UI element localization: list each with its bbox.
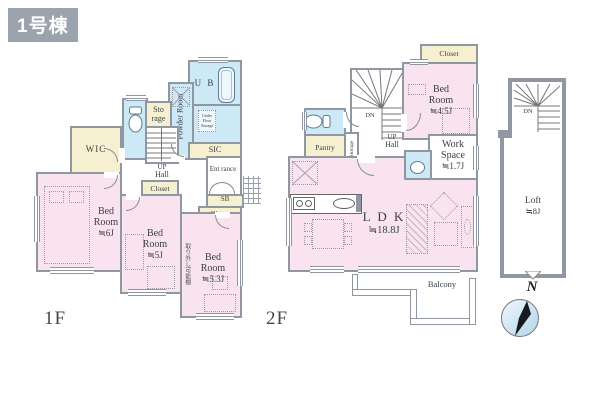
- window-marker: [286, 198, 292, 246]
- bedroom-53j-label: Bed Room ≒5.3J: [193, 252, 233, 284]
- room-toilet-2f: [304, 108, 346, 136]
- desk-icon-53j: [204, 294, 236, 312]
- under-floor-storage-box: Under Floor Storage: [198, 110, 216, 132]
- window-marker: [34, 196, 40, 242]
- building-title: 1号棟: [8, 8, 78, 42]
- bed-icon-6j: [44, 186, 90, 264]
- entrance-label: Ent rance: [208, 166, 238, 174]
- window-marker: [198, 57, 228, 63]
- chair-icon: [304, 223, 312, 232]
- under-floor-storage-label: Under Floor Storage: [199, 113, 215, 129]
- bathtub-inner: [221, 70, 232, 100]
- window-marker: [410, 59, 428, 65]
- floor-label-2f: 2F: [266, 308, 288, 330]
- window-marker: [126, 95, 146, 101]
- toilet-icon-1f: [126, 106, 145, 134]
- compass-needle-icon: [507, 300, 535, 338]
- sic-label: SIC: [196, 146, 234, 155]
- hall-label-1f: Hall: [140, 171, 184, 180]
- toilet-icon-2f: [303, 112, 331, 131]
- door-gap: [119, 148, 125, 163]
- bathtub-icon: [218, 67, 235, 103]
- work-space-label: Work Space ≒1.7J: [432, 139, 474, 171]
- balcony-label: Balcony: [412, 280, 472, 290]
- sofa-icon: [434, 222, 458, 246]
- window-marker: [310, 266, 344, 273]
- chair-icon: [344, 223, 352, 232]
- window-marker: [128, 289, 166, 296]
- refrigerator-space-icon: [292, 161, 318, 185]
- window-marker: [473, 196, 479, 246]
- stairs-2f-icon: [352, 70, 408, 140]
- pillow-icon: [69, 191, 84, 203]
- closet-2f-label: Closet: [420, 50, 478, 58]
- dining-table-icon: [312, 219, 344, 249]
- window-marker: [237, 240, 243, 286]
- ldk-label: L D K ≒18.8J: [358, 210, 410, 236]
- floor-label-1f: 1F: [44, 308, 66, 330]
- burner-icon: [305, 200, 312, 207]
- window-marker: [196, 313, 234, 320]
- window-marker: [358, 266, 460, 273]
- balcony-rail: [352, 289, 415, 296]
- desk-icon-5j: [147, 266, 175, 289]
- storage-1f-label: Sto rage: [147, 106, 170, 124]
- hall-label-2f: Hall: [374, 141, 410, 150]
- chair-icon: [304, 236, 312, 245]
- window-marker: [473, 146, 479, 170]
- compass-n-label: N: [520, 279, 544, 296]
- basin-bowl-icon: [410, 161, 425, 174]
- pantry-label: Pantry: [304, 144, 346, 152]
- shoe-box-label: SB: [206, 196, 244, 204]
- sink-icon: [333, 198, 355, 209]
- kitchen-counter: [290, 194, 362, 214]
- bedroom-6j-label: Bed Room ≒6J: [88, 206, 124, 238]
- loft-wall-stub: [498, 130, 512, 138]
- side-shelf-inner: [464, 219, 471, 235]
- window-marker: [50, 267, 94, 274]
- entrance-porch: [243, 176, 261, 204]
- chair-icon: [344, 236, 352, 245]
- closet-5j-label: Closet: [141, 185, 179, 193]
- window-marker: [473, 84, 479, 118]
- tv-board-icon: [406, 204, 428, 254]
- unit-bath-label: U B: [192, 78, 218, 88]
- removable-shelf-note: 取り外し可能棚: [183, 228, 190, 300]
- balcony-rail: [410, 318, 476, 325]
- burner-icon: [296, 200, 303, 207]
- floor-plan-canvas: 1号棟 U B Powder Room Under Floor Storage …: [0, 0, 600, 412]
- wash-basin-2f: [404, 150, 432, 180]
- loft-label: Loft ≒8J: [500, 196, 566, 216]
- stove-icon: [293, 197, 315, 210]
- window-marker: [302, 112, 307, 130]
- bedroom-45j-label: Bed Room ≒4.5J: [422, 84, 460, 116]
- pillow-icon: [49, 191, 64, 203]
- dn-label-2f: DN: [360, 112, 380, 119]
- dn-label-loft: DN: [518, 108, 538, 115]
- washer-space-icon: [172, 87, 190, 107]
- bedroom-5j-label: Bed Room ≒5J: [137, 228, 173, 260]
- counter-end: [356, 195, 361, 212]
